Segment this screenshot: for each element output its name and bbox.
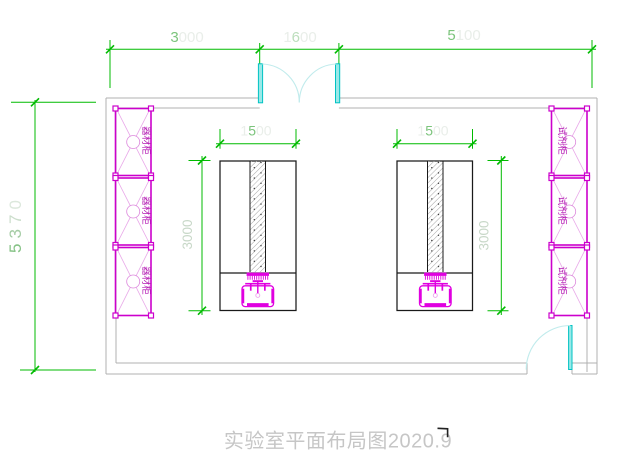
svg-text:器材柜: 器材柜	[140, 126, 152, 155]
svg-text:5100: 5100	[447, 27, 480, 44]
svg-text:实验室平面布局图2020.9: 实验室平面布局图2020.9	[224, 430, 452, 453]
svg-text:器材柜: 器材柜	[140, 196, 152, 225]
svg-text:试剂柜: 试剂柜	[556, 196, 568, 225]
svg-text:1500: 1500	[417, 123, 448, 139]
svg-text:3000: 3000	[170, 29, 203, 46]
svg-text:3000: 3000	[477, 220, 492, 250]
svg-text:器材柜: 器材柜	[140, 266, 152, 295]
svg-text:试剂柜: 试剂柜	[556, 126, 568, 155]
svg-text:1500: 1500	[240, 123, 271, 139]
svg-text:3000: 3000	[180, 219, 195, 249]
svg-text:5370: 5370	[6, 195, 25, 253]
svg-text:试剂柜: 试剂柜	[556, 266, 568, 295]
svg-text:1600: 1600	[283, 29, 316, 46]
